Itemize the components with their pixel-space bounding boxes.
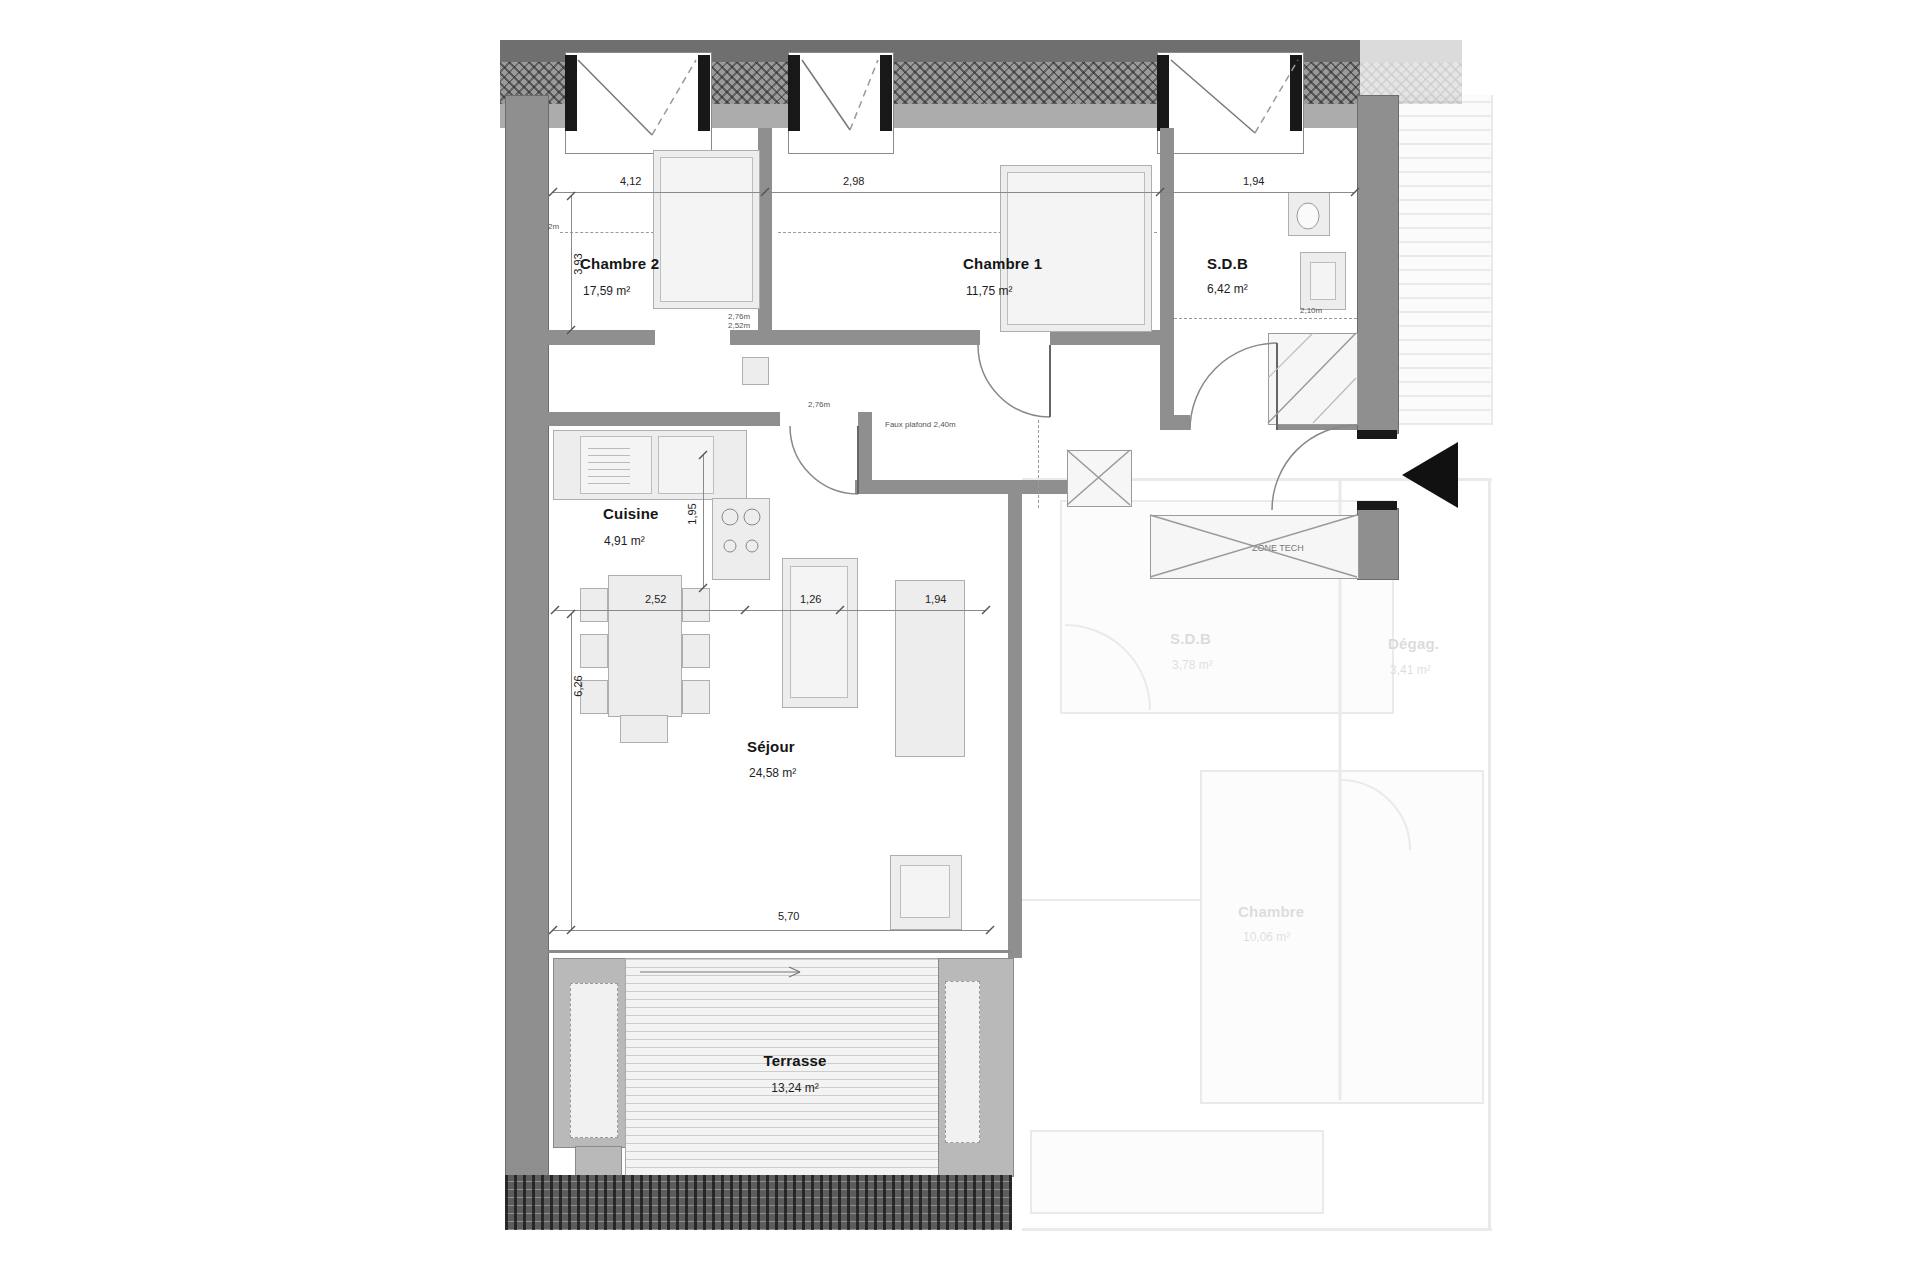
annotation-sdb-height: 2,10m [1300, 306, 1322, 315]
dim-line-kitchen [703, 455, 704, 588]
adjacent-balcony-hatch [1397, 95, 1493, 425]
room-name-chambre1: Chambre 1 [963, 255, 1042, 272]
hall-wall-segment [730, 330, 980, 345]
window-jamb [1157, 55, 1169, 131]
corridor-dashed-line [1038, 420, 1039, 508]
chair [580, 680, 608, 714]
adjacent-room-name: Dégag. [1388, 635, 1439, 652]
window-chambre1 [788, 52, 894, 154]
room-area-sdb: 6,42 m² [1207, 282, 1248, 296]
dim-line-top [553, 192, 1355, 193]
room-name-sejour: Séjour [747, 738, 795, 755]
adjacent-room-outline [1030, 1130, 1324, 1214]
dim-top-3: 1,94 [1243, 175, 1264, 187]
sideboard-inner [790, 566, 848, 698]
sdb-south-wall [1174, 415, 1190, 430]
dim-top-1: 4,12 [620, 175, 641, 187]
bed-chambre1-inner [1007, 172, 1145, 325]
dim-mid-1: 2,52 [645, 593, 666, 605]
ceiling-dashed-line [1174, 318, 1357, 319]
adjacent-room-name: S.D.B [1170, 630, 1211, 647]
chair [620, 715, 668, 743]
dim-left-lower: 6,26 [572, 666, 584, 706]
room-name-terrasse: Terrasse [735, 1052, 855, 1069]
side-table-inner [900, 865, 950, 918]
chair [682, 588, 710, 622]
terrace-planter-right-inner [945, 981, 980, 1143]
window-chambre2 [565, 52, 712, 154]
terrace-planter-left-base [575, 1146, 622, 1177]
window-jamb [1290, 55, 1302, 131]
chair [682, 634, 710, 668]
chair [580, 588, 608, 622]
adjacent-wall [1022, 1228, 1492, 1231]
shower-fixture [1268, 333, 1358, 425]
kitchen-sink-grate [588, 444, 630, 484]
annotation-ceiling-a2: 2,76m [808, 400, 830, 409]
annotation-ceiling-left: 2m [548, 222, 559, 231]
left-exterior-wall [505, 95, 549, 1209]
hall-wall-segment [547, 330, 655, 345]
sejour-terrace-edge [547, 950, 1012, 953]
room-area-chambre2: 17,59 m² [583, 284, 630, 298]
chair [682, 680, 710, 714]
floor-plan-canvas: S.D.B 3,78 m² Dégag. 3,41 m² Chambre 10,… [0, 0, 1919, 1278]
dim-left-upper: 3,93 [572, 244, 584, 284]
dim-line-left-lower [571, 614, 572, 930]
adjacent-room-area: 10,06 m² [1243, 930, 1290, 944]
window-jamb [698, 55, 710, 131]
dim-top-2: 2,98 [843, 175, 864, 187]
dim-mid-2: 1,26 [800, 593, 821, 605]
terrace-bottom-wall [505, 1175, 1012, 1230]
hall-radiator [742, 357, 769, 385]
room-name-sdb: S.D.B [1207, 255, 1248, 272]
bed-chambre2-inner [660, 157, 753, 302]
washbasin-bowl [1310, 262, 1336, 300]
top-wall-faded-extension [1360, 40, 1462, 62]
hall-wall-segment [1050, 330, 1160, 345]
entrance-jamb [1357, 430, 1397, 439]
hall-sejour-wall [855, 480, 1067, 494]
right-exterior-wall-stub [1357, 508, 1399, 580]
room-name-cuisine: Cuisine [603, 505, 659, 522]
entrance-arrow [1402, 442, 1458, 508]
kitchen-worktop [658, 436, 714, 494]
wall-chambre2-chambre1 [758, 128, 772, 330]
room-area-chambre1: 11,75 m² [966, 284, 1012, 298]
annotation-ceiling-b: 2,52m [728, 321, 750, 330]
wc-fixture [1288, 192, 1330, 236]
dim-line-middle [555, 610, 986, 611]
room-area-sejour: 24,58 m² [749, 766, 796, 780]
window-jamb [565, 55, 577, 131]
room-area-cuisine: 4,91 m² [604, 534, 645, 548]
window-jamb [880, 55, 892, 131]
kitchen-stove-unit [712, 498, 770, 580]
tech-shaft-box [1067, 450, 1132, 507]
adjacent-room-name: Chambre [1238, 903, 1304, 920]
annotation-ceiling-a: 2,76m [728, 312, 750, 321]
adjacent-room-area: 3,41 m² [1390, 663, 1431, 677]
right-exterior-wall [1357, 95, 1399, 434]
annotation-faux-plafond: Faux plafond 2,40m [885, 420, 956, 429]
dim-mid-3: 1,94 [925, 593, 946, 605]
dim-kitchen-depth: 1,95 [686, 494, 698, 534]
kitchen-top-wall [547, 412, 780, 426]
sofa [895, 580, 965, 757]
room-area-terrasse: 13,24 m² [735, 1081, 855, 1095]
dim-bottom: 5,70 [778, 910, 799, 922]
terrace-planter-left-inner [570, 983, 618, 1138]
zone-tech-label: ZONE TECH [1252, 543, 1304, 553]
wall-chambre1-sdb [1160, 128, 1174, 430]
entrance-jamb [1357, 501, 1397, 510]
sejour-right-wall [1008, 480, 1022, 958]
chair [580, 634, 608, 668]
adjacent-room-area: 3,78 m² [1172, 658, 1213, 672]
room-name-chambre2: Chambre 2 [580, 255, 659, 272]
window-sdb [1157, 52, 1304, 154]
window-jamb [788, 55, 800, 131]
adjacent-wall [1488, 478, 1491, 1230]
dim-line-bottom [553, 930, 990, 931]
